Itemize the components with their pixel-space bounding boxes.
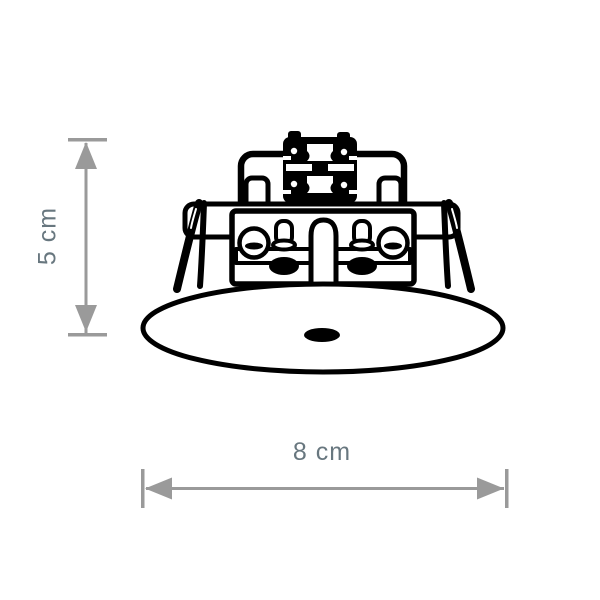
arrow-right-icon xyxy=(477,478,504,500)
height-cap-bottom xyxy=(68,333,107,337)
arrow-down-icon xyxy=(75,305,97,332)
terminal-cutout-upper xyxy=(307,144,333,161)
coil-spring-right xyxy=(379,229,408,258)
width-cap-right xyxy=(505,469,509,508)
terminal-block xyxy=(283,137,357,203)
width-cap-left xyxy=(141,469,145,508)
center-hole xyxy=(304,328,340,342)
terminal-cutout-lower xyxy=(307,176,333,193)
diagram-canvas: 5 cm 8 cm xyxy=(0,0,600,600)
height-label: 5 cm xyxy=(34,207,62,265)
height-dimension xyxy=(68,138,107,337)
width-dimension xyxy=(141,469,509,508)
trim-plate xyxy=(143,284,503,372)
arrow-left-icon xyxy=(145,478,172,500)
coil-spring-left xyxy=(240,229,269,258)
dimension-diagram: 5 cm 8 cm xyxy=(0,0,600,600)
central-arch xyxy=(311,220,336,284)
height-dimension-line xyxy=(85,143,88,333)
height-cap-top xyxy=(68,138,107,142)
width-label: 8 cm xyxy=(293,438,351,466)
fixture-drawing xyxy=(143,131,503,372)
arrow-up-icon xyxy=(75,142,97,169)
width-dimension-line xyxy=(146,487,504,490)
